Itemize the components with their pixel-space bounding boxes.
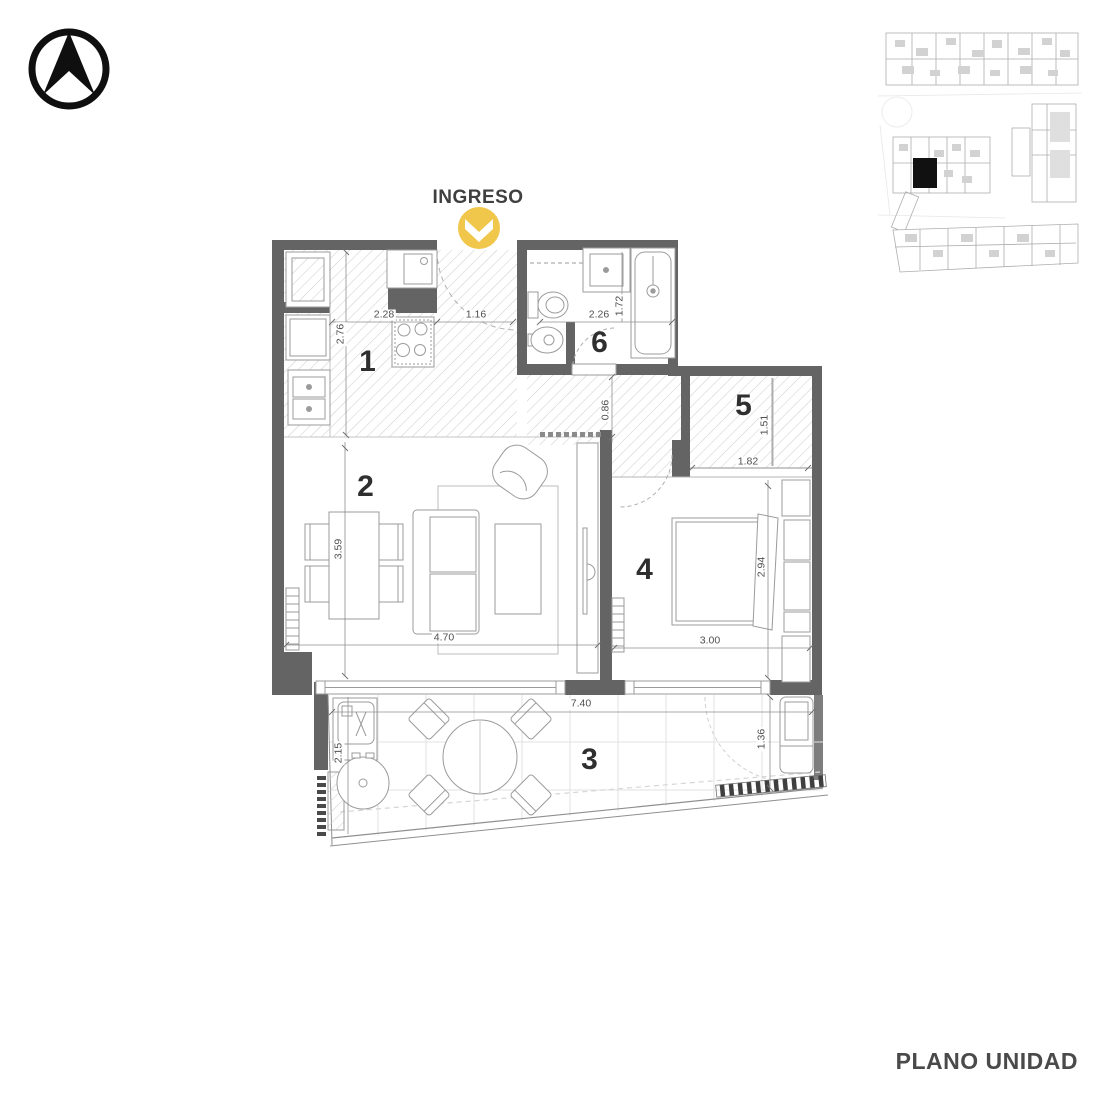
entry-marker-icon <box>458 207 500 249</box>
radiator-icon <box>286 588 299 650</box>
key-plan-building-right <box>1012 104 1076 202</box>
radiator-icon <box>612 598 624 652</box>
left-railing-ticks <box>317 776 326 836</box>
page-title: PLANO UNIDAD <box>896 1048 1078 1075</box>
floor-plan-svg <box>0 0 1100 1100</box>
north-compass-icon <box>32 32 106 106</box>
floor-plan-page: { "plan": { "entry_label": "INGRESO", "t… <box>0 0 1100 1100</box>
key-plan-building-top <box>886 33 1078 85</box>
balcony <box>317 695 828 846</box>
living-furniture <box>286 439 598 673</box>
bedroom-furniture <box>612 480 810 682</box>
key-plan-building-middle <box>891 137 990 232</box>
hatched-zones <box>284 250 812 477</box>
filled-unit-marker <box>913 158 937 188</box>
lounge-chair <box>780 697 813 773</box>
bathroom-fixtures <box>528 248 675 358</box>
site-key-plan <box>878 33 1082 272</box>
key-plan-building-bottom <box>893 224 1078 272</box>
